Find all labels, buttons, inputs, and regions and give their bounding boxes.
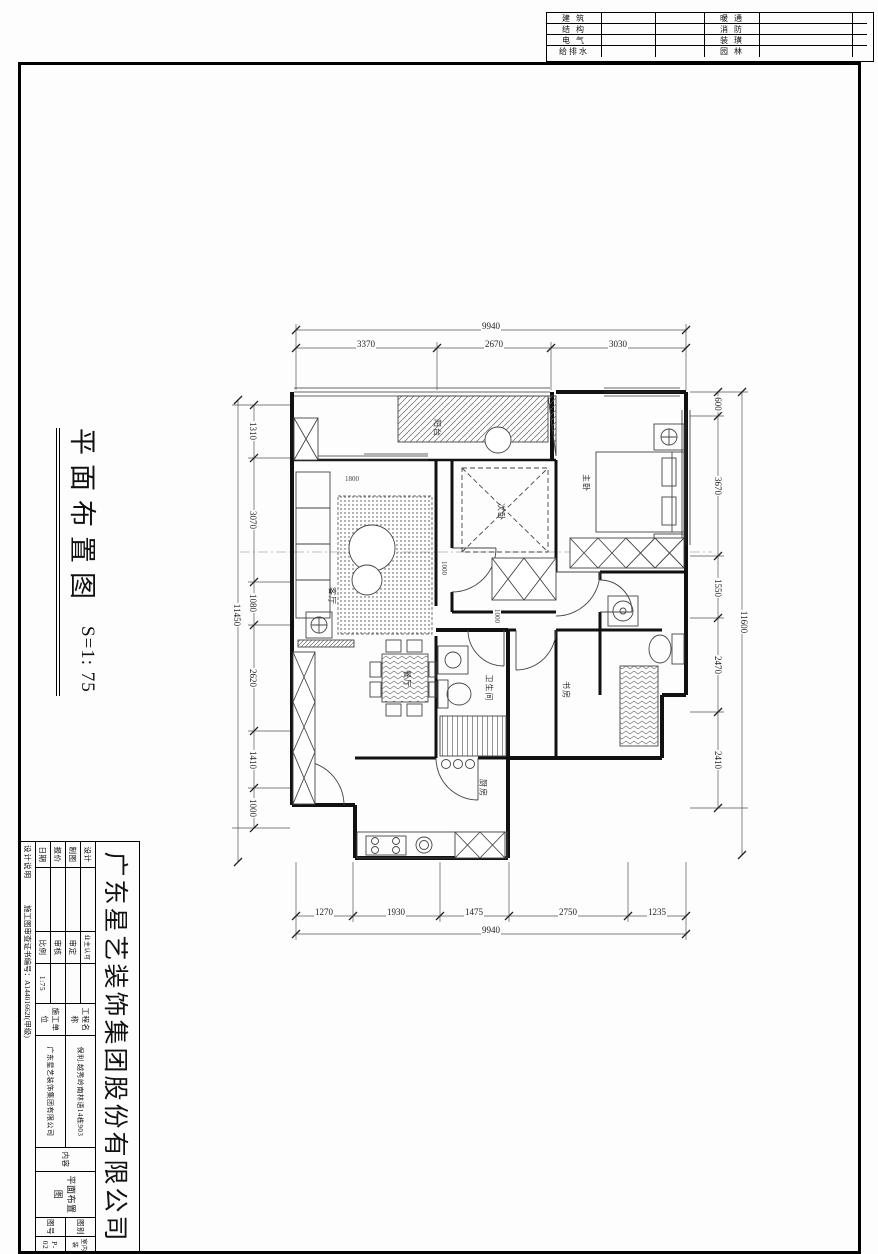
dimension-label: 2670 bbox=[484, 339, 504, 349]
dimension-label: 1800 bbox=[344, 475, 360, 483]
titleblock-label: 业主认可 bbox=[80, 932, 95, 964]
master-bedroom-furniture bbox=[570, 424, 684, 568]
drawing-title: 平面布置图 S=1: 75 bbox=[56, 428, 104, 696]
titleblock-footer: 设计说明 施工图审查证书编号：A14401662I(甲级) bbox=[21, 842, 35, 1253]
dimension-label: 2410 bbox=[713, 750, 723, 770]
title-block: 广东星艺装饰集团股份有限公司 设计 制图 报价 日期 业主认可 审定 审核 比例… bbox=[20, 841, 140, 1253]
discipline-label: 消 防 bbox=[705, 24, 760, 35]
dimension-label: 11600 bbox=[739, 610, 749, 634]
room-label: 主卧 bbox=[581, 474, 592, 492]
sheet-number-label: 图号 bbox=[35, 1218, 65, 1237]
company-name: 广东星艺装饰集团股份有限公司 bbox=[95, 842, 139, 1253]
dimension-label: 11450 bbox=[232, 603, 242, 627]
discipline-label: 电 气 bbox=[547, 35, 602, 46]
discipline-blank bbox=[760, 13, 853, 24]
kitchen-fixtures bbox=[357, 760, 507, 859]
discipline-label: 结 构 bbox=[547, 24, 602, 35]
dimension-label: 3030 bbox=[608, 339, 628, 349]
discipline-blank bbox=[656, 46, 705, 57]
dimension-label: 1000 bbox=[493, 608, 501, 624]
titleblock-value bbox=[65, 868, 80, 932]
dimension-label: 600 bbox=[713, 396, 723, 412]
dimension-label: 1550 bbox=[713, 578, 723, 598]
bedroom2-furniture bbox=[462, 468, 556, 600]
discipline-blank bbox=[760, 35, 853, 46]
dimension-label: 3070 bbox=[248, 510, 258, 530]
floor-plan-svg bbox=[225, 305, 770, 955]
titleblock-value bbox=[50, 868, 65, 932]
scale-value: 1:75 bbox=[35, 964, 50, 1004]
dimension-label: 3670 bbox=[713, 476, 723, 496]
room-label: 客厅 bbox=[327, 587, 338, 605]
discipline-blank bbox=[602, 24, 656, 35]
dimension-label: 1270 bbox=[314, 907, 334, 917]
study-furniture bbox=[620, 666, 658, 746]
discipline-label: 装 璜 bbox=[705, 35, 760, 46]
room-label: 餐厅 bbox=[402, 670, 413, 688]
discipline-blank bbox=[853, 13, 867, 24]
titleblock-label: 审定 bbox=[65, 932, 80, 964]
titleblock-value bbox=[80, 868, 95, 932]
titleblock-label: 设计 bbox=[80, 842, 95, 868]
sheet-type-label: 图别 bbox=[65, 1218, 95, 1237]
discipline-blank bbox=[656, 35, 705, 46]
dimension-label: 2470 bbox=[713, 655, 723, 675]
dimension-label: 1000 bbox=[248, 798, 258, 818]
dimension-label: 9940 bbox=[481, 925, 501, 935]
dimension-label: 1475 bbox=[464, 907, 484, 917]
bathroom-fixtures bbox=[438, 646, 506, 756]
discipline-blank bbox=[760, 24, 853, 35]
content-label: 内容 bbox=[35, 1148, 95, 1172]
content-value: 平面布置图 bbox=[35, 1172, 95, 1218]
discipline-blank bbox=[656, 24, 705, 35]
room-label: 阳台 bbox=[432, 419, 443, 437]
drawing-title-text: 平面布置图 bbox=[65, 428, 104, 608]
room-label: 书房 bbox=[561, 681, 572, 699]
dimension-label: 3370 bbox=[356, 339, 376, 349]
discipline-table: 建 筑 暖 通 结 构 消 防 电 气 装 璜 给排水 园 林 bbox=[546, 12, 874, 62]
builder-value: 广东星艺装饰集团有限公司 bbox=[35, 1036, 65, 1148]
discipline-blank bbox=[853, 46, 867, 57]
dimension-label: 1410 bbox=[248, 750, 258, 770]
titleblock-value bbox=[65, 964, 80, 1004]
discipline-blank bbox=[602, 35, 656, 46]
discipline-blank bbox=[602, 13, 656, 24]
room-label: 厨房 bbox=[478, 779, 489, 797]
titleblock-value bbox=[35, 868, 50, 932]
sheet-number-value: P-02 bbox=[35, 1237, 65, 1253]
sheet-type-value: 室内装 bbox=[65, 1237, 95, 1253]
discipline-label: 给排水 bbox=[547, 46, 602, 57]
discipline-blank bbox=[853, 24, 867, 35]
drawing-sheet: { "discipline_table": { "rows": [ {"left… bbox=[0, 0, 878, 1254]
discipline-blank bbox=[656, 13, 705, 24]
dimension-label: 1235 bbox=[647, 907, 667, 917]
design-note-label: 设计说明 bbox=[23, 845, 34, 879]
titleblock-label: 制图 bbox=[65, 842, 80, 868]
dimension-label: 1310 bbox=[248, 421, 258, 441]
discipline-label: 建 筑 bbox=[547, 13, 602, 24]
dimension-label: 1000 bbox=[440, 560, 448, 576]
living-room-furniture bbox=[293, 472, 432, 804]
room-label: 卫生间 bbox=[484, 675, 495, 702]
discipline-blank bbox=[760, 46, 853, 57]
room-label: 次卧 bbox=[496, 503, 507, 521]
dimension-label: 2620 bbox=[248, 668, 258, 688]
dimension-label: 9940 bbox=[481, 321, 501, 331]
balcony-fixtures bbox=[294, 396, 556, 460]
builder-label: 施工单位 bbox=[35, 1004, 65, 1036]
dimension-label: 1930 bbox=[386, 907, 406, 917]
project-name-value: 保利.越秀岭南林语14栋903 bbox=[65, 1036, 95, 1148]
dimension-label: 2750 bbox=[558, 907, 578, 917]
titleblock-label: 比例 bbox=[35, 932, 50, 964]
discipline-label: 暖 通 bbox=[705, 13, 760, 24]
titleblock-value bbox=[50, 964, 65, 1004]
discipline-blank bbox=[602, 46, 656, 57]
project-name-label: 工程名称 bbox=[65, 1004, 95, 1036]
titleblock-label: 报价 bbox=[50, 842, 65, 868]
dimension-label: 1080 bbox=[248, 593, 258, 613]
titleblock-label: 日期 bbox=[35, 842, 50, 868]
drawing-scale-text: S=1: 75 bbox=[76, 626, 98, 693]
discipline-label: 园 林 bbox=[705, 46, 760, 57]
certificate-number: 施工图审查证书编号：A14401662I(甲级) bbox=[23, 905, 34, 1038]
discipline-blank bbox=[853, 35, 867, 46]
titleblock-value bbox=[80, 964, 95, 1004]
titleblock-label: 审核 bbox=[50, 932, 65, 964]
